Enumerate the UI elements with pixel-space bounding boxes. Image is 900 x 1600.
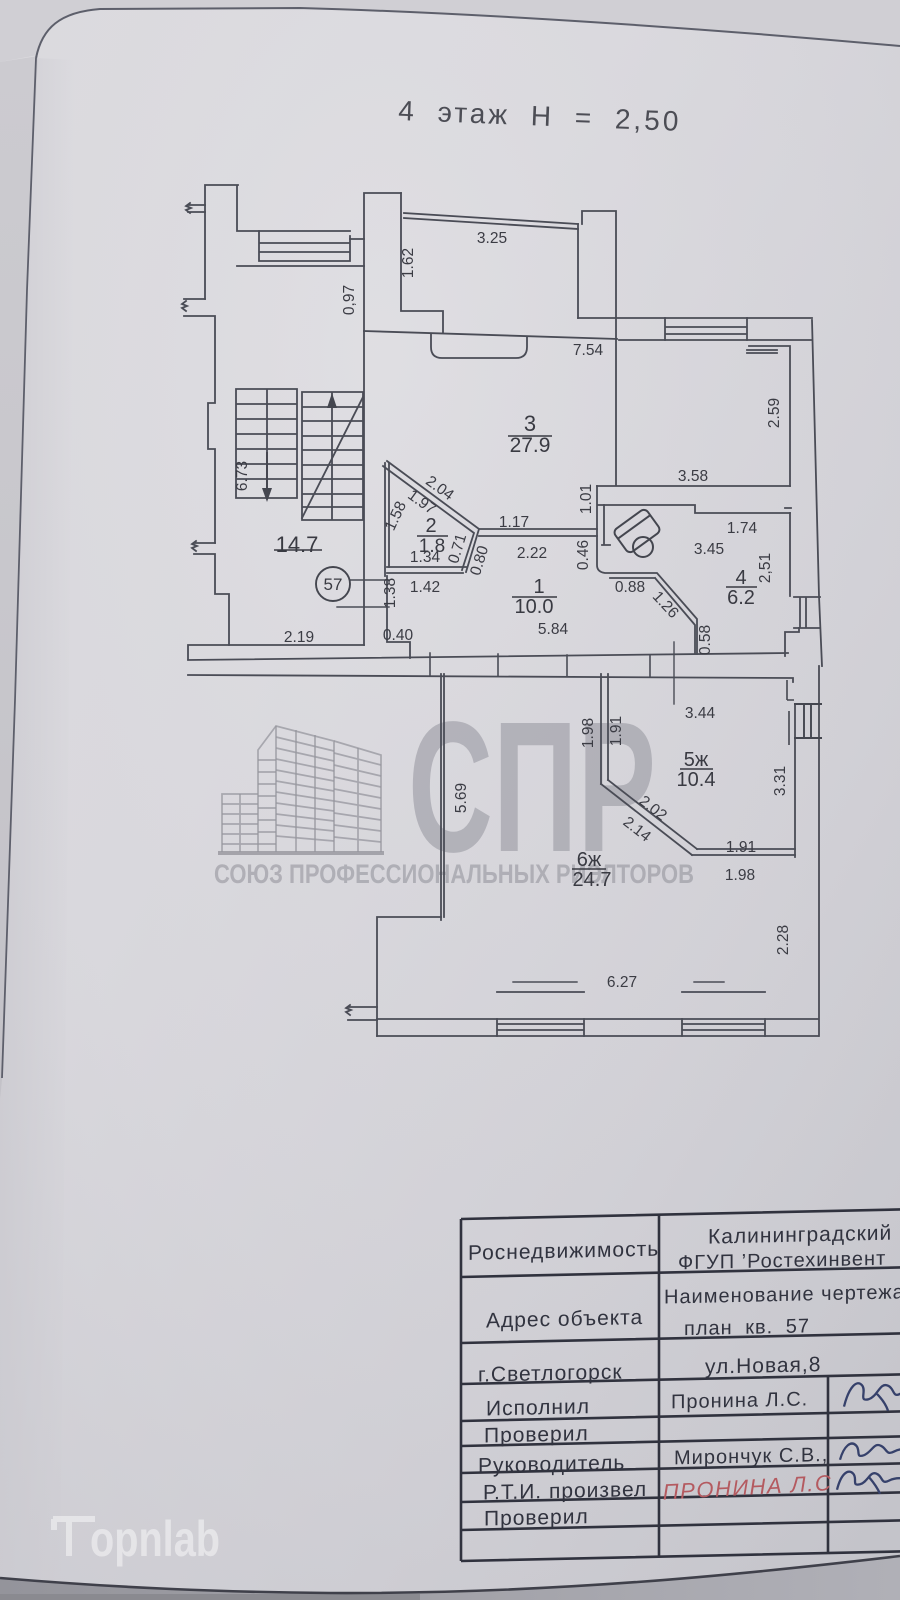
svg-text:2: 2 (425, 515, 436, 537)
svg-text:1.91: 1.91 (726, 839, 756, 856)
svg-text:0.88: 0.88 (615, 579, 645, 596)
svg-text:3.45: 3.45 (694, 541, 724, 558)
svg-text:3.31: 3.31 (772, 766, 789, 796)
svg-text:0.40: 0.40 (383, 627, 414, 644)
svg-text:2.22: 2.22 (517, 545, 547, 562)
svg-text:10.4: 10.4 (677, 769, 716, 791)
svg-text:0.58: 0.58 (697, 625, 714, 655)
svg-text:Калининградский: Калининградский (708, 1222, 892, 1249)
svg-text:1.91: 1.91 (608, 716, 625, 746)
svg-text:1: 1 (533, 576, 544, 598)
svg-text:6ж: 6ж (577, 849, 602, 871)
svg-text:1.42: 1.42 (410, 579, 440, 596)
svg-text:0.46: 0.46 (575, 540, 592, 570)
svg-text:ФГУП ’Ростехинвент: ФГУП ’Ростехинвент (678, 1248, 886, 1275)
svg-text:10.0: 10.0 (515, 596, 554, 618)
svg-text:1.74: 1.74 (727, 520, 758, 537)
svg-text:1.98: 1.98 (580, 718, 597, 748)
svg-text:1.62: 1.62 (400, 248, 417, 278)
svg-text:Роснедвижимость: Роснедвижимость (468, 1238, 659, 1265)
svg-text:2.28: 2.28 (775, 925, 792, 955)
svg-text:Р.Т.И. произвел: Р.Т.И. произвел (483, 1478, 647, 1505)
svg-text:57: 57 (324, 575, 343, 594)
svg-text:6.73: 6.73 (234, 461, 251, 491)
svg-text:3: 3 (524, 411, 536, 436)
svg-text:6.27: 6.27 (607, 974, 637, 991)
svg-text:Проверил: Проверил (484, 1422, 589, 1447)
svg-text:2.19: 2.19 (284, 629, 314, 646)
svg-text:1.17: 1.17 (499, 514, 529, 531)
svg-text:г.Светлогорск: г.Светлогорск (478, 1360, 623, 1386)
svg-text:3.25: 3.25 (477, 230, 507, 247)
svg-text:СОЮЗ ПРОФЕССИОНАЛЬНЫХ РИЭЛТОРО: СОЮЗ ПРОФЕССИОНАЛЬНЫХ РИЭЛТОРОВ (214, 859, 694, 889)
svg-text:ул.Новая,8: ул.Новая,8 (705, 1353, 821, 1379)
svg-text:5ж: 5ж (684, 749, 709, 771)
svg-text:план кв. 57: план кв. 57 (684, 1315, 810, 1340)
svg-text:Пронина Л.С.: Пронина Л.С. (671, 1388, 808, 1413)
svg-text:7.54: 7.54 (573, 342, 604, 359)
svg-text:1.98: 1.98 (725, 867, 755, 884)
svg-text:Руководитель: Руководитель (478, 1451, 625, 1477)
svg-text:Мирончук С.В.,: Мирончук С.В., (674, 1444, 828, 1469)
svg-text:2,51: 2,51 (757, 553, 774, 583)
svg-text:Проверил: Проверил (484, 1505, 589, 1530)
svg-text:opnlab: opnlab (90, 1511, 220, 1567)
svg-text:27.9: 27.9 (510, 434, 551, 457)
svg-text:3.44: 3.44 (685, 705, 716, 722)
svg-text:14.7: 14.7 (276, 532, 319, 557)
svg-text:2.59: 2.59 (766, 398, 783, 428)
svg-text:4: 4 (735, 567, 746, 589)
svg-text:Адрес объекта: Адрес объекта (486, 1306, 643, 1332)
svg-text:1.8: 1.8 (419, 536, 445, 557)
svg-text:6.2: 6.2 (727, 587, 755, 609)
svg-text:24.7: 24.7 (573, 869, 612, 891)
svg-text:5.69: 5.69 (453, 783, 470, 813)
svg-text:0,97: 0,97 (341, 285, 358, 315)
svg-text:3.58: 3.58 (678, 468, 708, 485)
svg-text:5.84: 5.84 (538, 621, 569, 638)
svg-text:Исполнил: Исполнил (486, 1395, 590, 1420)
svg-text:1.38: 1.38 (382, 578, 399, 608)
svg-text:1.01: 1.01 (578, 484, 595, 514)
